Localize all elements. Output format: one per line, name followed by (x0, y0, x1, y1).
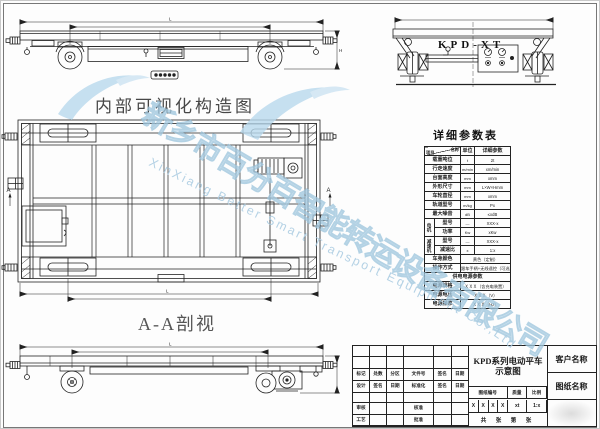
table-header-value: 详细参数 (475, 147, 511, 156)
parameter-table: 项目 名称 单位 详细参数 载重吨位t2t 行走速度m/minxm/min 台面… (424, 146, 511, 309)
table-header-item: 项目 名称 (425, 147, 461, 156)
buffer-right (323, 37, 337, 44)
table-section-header: 供电电源参数 (425, 273, 511, 282)
mass-label: 质量 (508, 387, 528, 399)
drawing-no-label: 图纸编号 (469, 387, 508, 399)
blank-cell (547, 400, 596, 427)
title-block-middle: KPD系列电动平车 示意图 图纸编号 质量 比例 X X X X xt 1:x … (469, 346, 548, 426)
plan-buffers (2, 133, 336, 271)
sheet-info: 共 张 第 张 (469, 414, 547, 426)
table-row-motor: 功率KwxKw (425, 228, 511, 237)
plan-view-caption: 内部可视化构造图 (95, 92, 255, 117)
table-row-power: 电源频率ＸＸＸ（Hz） (425, 300, 511, 309)
side-view-top: L H (6, 17, 342, 80)
side-view-section: L (6, 342, 340, 394)
scale-value: 1:x (527, 400, 546, 413)
table-row-reducer: 减速机型号—XXX-x (425, 237, 511, 246)
plan-view: A A L (2, 120, 336, 302)
plan-battery-box (22, 206, 68, 246)
table-row-wide: 操作方式跟车手柄+无线遥控（可选） (425, 264, 511, 273)
table-row-wide: 车身颜色黄色（定制） (425, 255, 511, 264)
drawing-name-cell: 图纸名称 (547, 373, 596, 400)
section-letter-left: A (7, 188, 11, 194)
table-row: 最大噪音dB≤xdB (425, 210, 511, 219)
audit-cell: 审核 (353, 403, 370, 415)
table-row: 外形尺寸mmL×W×Hmm (425, 183, 511, 192)
table-row: 轨道型号m/kgPx (425, 201, 511, 210)
section-marker-right (329, 193, 332, 206)
plan-wheel-assemblies (40, 124, 299, 276)
table-row: 车轮直径mmxmm (425, 192, 511, 201)
buffer-left (6, 37, 20, 44)
end-view: KPD-XT (393, 17, 556, 87)
table-row-power: 电源电压ＸＸＸ（V） (425, 291, 511, 300)
customer-name-cell: 客户名称 (547, 346, 596, 373)
end-view-model-label: KPD-XT (438, 39, 504, 51)
table-row-reducer: 减速比x1:x (425, 246, 511, 255)
section-marker-left (9, 193, 12, 206)
table-row: 台面高度mmxmm (425, 174, 511, 183)
scale-label: 比例 (527, 387, 547, 399)
product-title: KPD系列电动平车 示意图 (469, 346, 547, 387)
check-cell: 核准 (404, 403, 434, 415)
plan-dim-label: L (166, 289, 169, 294)
approve-cell: 批准 (404, 415, 434, 426)
stage-box: X (498, 400, 508, 413)
mass-value: xt (508, 400, 527, 413)
wheel-left (56, 41, 84, 69)
section-wheel-left (60, 366, 84, 393)
section-wheel-motor-right (256, 366, 302, 393)
section-dim-label: L (169, 342, 172, 347)
section-buffers (6, 362, 337, 369)
end-wheel-left (398, 52, 428, 82)
param-table-title: 详细参数表 (433, 127, 498, 143)
dim-height-label: H (339, 48, 342, 53)
table-header-unit: 单位 (461, 147, 475, 156)
title-block-right: 客户名称 图纸名称 (547, 346, 596, 426)
stage-box: X (469, 400, 479, 413)
table-row: 行走速度m/minxm/min (425, 165, 511, 174)
title-block: 标记处数分区文件号签名日期 设计签名日期标准化签名日期 审核核准 工艺批准 KP… (352, 345, 597, 427)
end-wheel-right (523, 52, 553, 82)
section-view-caption: A-A剖视 (138, 310, 216, 336)
stage-box: X (489, 400, 499, 413)
table-row-power: 电源规格ＸＸＸ（含充电装置） (425, 282, 511, 291)
plan-motor-drive (254, 158, 302, 252)
stage-box: X (479, 400, 489, 413)
wheel-right (256, 41, 284, 69)
section-letter-right: A (327, 188, 331, 194)
dim-length-label: L (169, 17, 172, 22)
table-row: 载重吨位t2t (425, 156, 511, 165)
table-row-motor: 电机型号—XXX-x (425, 219, 511, 228)
craft-cell: 工艺 (353, 415, 370, 426)
revision-grid: 标记处数分区文件号签名日期 设计签名日期标准化签名日期 审核核准 工艺批准 (353, 346, 469, 426)
